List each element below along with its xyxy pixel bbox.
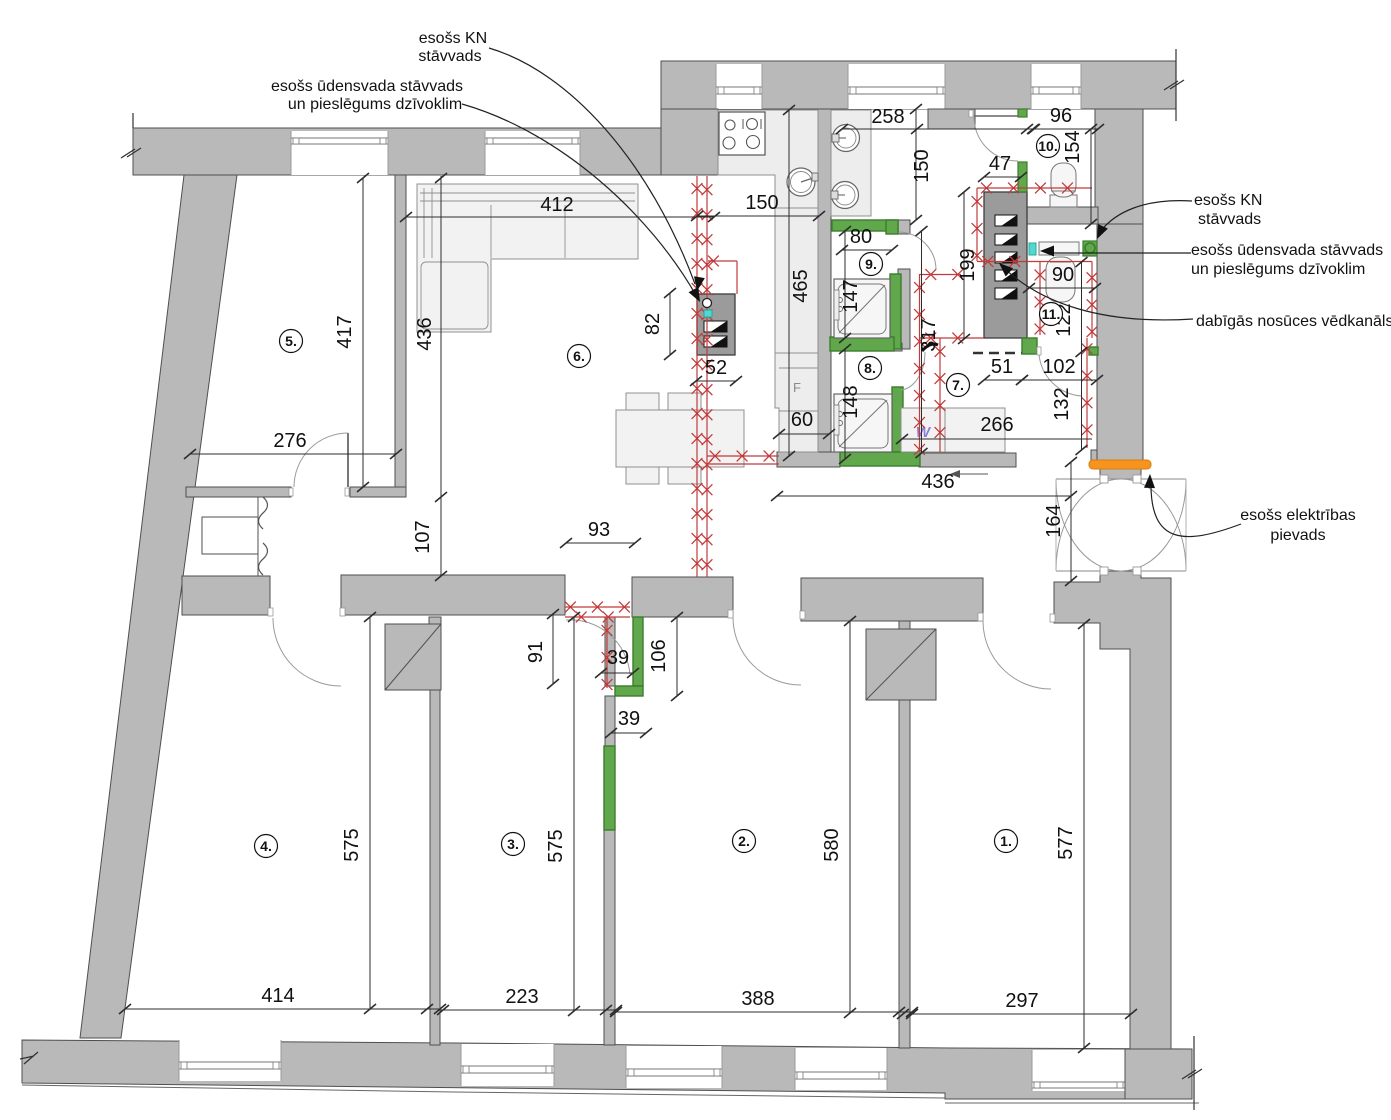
svg-text:90: 90 xyxy=(1052,264,1074,286)
svg-text:stāvvads: stāvvads xyxy=(1198,211,1261,228)
svg-text:stāvvads: stāvvads xyxy=(418,48,481,65)
svg-text:577: 577 xyxy=(1055,826,1077,859)
svg-text:148: 148 xyxy=(840,385,862,418)
svg-text:297: 297 xyxy=(1005,990,1038,1012)
svg-text:414: 414 xyxy=(261,985,294,1007)
svg-text:60: 60 xyxy=(791,409,813,431)
svg-text:412: 412 xyxy=(540,194,573,216)
svg-text:1.: 1. xyxy=(1000,833,1012,849)
svg-text:575: 575 xyxy=(341,828,363,861)
svg-text:580: 580 xyxy=(821,828,843,861)
svg-text:51: 51 xyxy=(991,356,1013,378)
svg-text:11.: 11. xyxy=(1042,306,1061,322)
svg-text:4.: 4. xyxy=(260,838,272,854)
svg-text:47: 47 xyxy=(989,153,1011,175)
svg-text:154: 154 xyxy=(1062,130,1084,163)
svg-text:esošs KN: esošs KN xyxy=(419,30,487,47)
svg-text:9.: 9. xyxy=(865,256,877,272)
svg-text:pievads: pievads xyxy=(1270,527,1325,544)
svg-text:10.: 10. xyxy=(1038,138,1057,154)
svg-text:102: 102 xyxy=(1042,356,1075,378)
svg-text:dabīgās nosūces vēdkanāls: dabīgās nosūces vēdkanāls xyxy=(1196,313,1391,330)
svg-text:un pieslēgums dzīvoklim: un pieslēgums dzīvoklim xyxy=(1191,261,1365,278)
svg-text:436: 436 xyxy=(921,471,954,493)
svg-text:2.: 2. xyxy=(738,833,750,849)
svg-text:150: 150 xyxy=(745,192,778,214)
svg-text:esošs ūdensvada stāvvads: esošs ūdensvada stāvvads xyxy=(271,78,463,95)
svg-text:96: 96 xyxy=(1050,105,1072,127)
svg-text:39: 39 xyxy=(607,647,629,669)
svg-text:258: 258 xyxy=(871,106,904,128)
svg-text:266: 266 xyxy=(980,414,1013,436)
svg-text:223: 223 xyxy=(505,986,538,1008)
svg-text:150: 150 xyxy=(911,149,933,182)
svg-text:8.: 8. xyxy=(864,360,876,376)
svg-text:147: 147 xyxy=(840,279,862,312)
svg-text:93: 93 xyxy=(588,519,610,541)
svg-text:436: 436 xyxy=(414,317,436,350)
svg-text:91: 91 xyxy=(525,641,547,663)
svg-text:164: 164 xyxy=(1043,504,1065,537)
svg-text:un pieslēgums dzīvoklim: un pieslēgums dzīvoklim xyxy=(288,96,462,113)
svg-text:82: 82 xyxy=(642,313,664,335)
svg-text:7.: 7. xyxy=(952,377,964,393)
svg-text:106: 106 xyxy=(648,639,670,672)
svg-text:52: 52 xyxy=(705,357,727,379)
svg-text:417: 417 xyxy=(334,315,356,348)
svg-text:39: 39 xyxy=(618,708,640,730)
svg-text:esošs elektrības: esošs elektrības xyxy=(1240,507,1356,524)
svg-text:388: 388 xyxy=(741,988,774,1010)
svg-text:3.: 3. xyxy=(507,836,519,852)
svg-text:107: 107 xyxy=(412,520,434,553)
svg-text:5.: 5. xyxy=(285,333,297,349)
svg-text:276: 276 xyxy=(273,430,306,452)
svg-text:6.: 6. xyxy=(573,348,585,364)
svg-text:575: 575 xyxy=(545,829,567,862)
svg-text:465: 465 xyxy=(790,269,812,302)
svg-text:132: 132 xyxy=(1051,387,1073,420)
svg-text:199: 199 xyxy=(957,248,979,281)
svg-text:F: F xyxy=(793,380,801,395)
svg-text:esošs ūdensvada stāvvads: esošs ūdensvada stāvvads xyxy=(1191,242,1383,259)
svg-text:esošs KN: esošs KN xyxy=(1194,192,1262,209)
svg-text:80: 80 xyxy=(850,226,872,248)
